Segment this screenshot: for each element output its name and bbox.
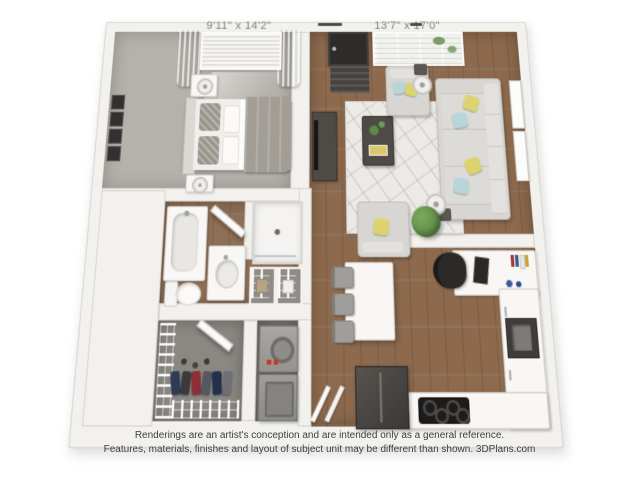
garment-icon [200, 371, 212, 395]
dining-chair [331, 267, 353, 289]
washer-button-icon [267, 360, 272, 365]
books-icon [369, 145, 388, 156]
throw-pillow-icon [453, 177, 470, 195]
gray-pillow [199, 103, 221, 131]
garment-icon [180, 371, 192, 395]
shower-glass [254, 255, 296, 257]
floor-lamp-icon [412, 75, 432, 95]
sink-basin [215, 260, 239, 289]
page: 9'11" x 14'2" 13'7" x 17'0" [0, 0, 639, 479]
closet-wire-shelving-south [171, 400, 239, 419]
art-frame-icon [106, 146, 121, 161]
nightstand-bottom [185, 175, 214, 193]
washer-button-icon [274, 360, 279, 365]
living-window [372, 32, 464, 66]
art-frame-icon [111, 95, 126, 110]
linen-closet-right [276, 267, 303, 306]
book-icon [525, 255, 529, 267]
table-lamp-icon [192, 177, 209, 194]
shower [252, 202, 303, 265]
sofa [435, 78, 511, 220]
dryer [258, 374, 298, 421]
disclaimer: Renderings are an artist's conception an… [0, 429, 639, 457]
floor-plan: 9'11" x 14'2" 13'7" x 17'0" [68, 22, 564, 448]
entry-doormat [330, 66, 369, 93]
armchair-bottom [357, 202, 411, 258]
disclaimer-line1: Renderings are an artist's conception an… [0, 429, 639, 443]
desk-accessory-icon [516, 281, 522, 287]
toilet-bowl [175, 282, 202, 305]
art-frame-icon [109, 112, 124, 127]
window-plant-icon [447, 46, 457, 53]
fridge-handle-icon [379, 373, 383, 423]
refrigerator [355, 366, 410, 429]
cabinet-handle-icon [509, 370, 512, 380]
coffee-table [362, 116, 395, 166]
gray-pillow [197, 136, 219, 164]
bathtub [163, 206, 208, 281]
washer [259, 325, 298, 372]
bed [182, 97, 291, 172]
dining-chair [332, 320, 355, 343]
garment-icon [222, 371, 233, 395]
throw-pillow-icon [373, 218, 390, 236]
bathtub-basin [170, 213, 199, 272]
floor-plant-icon [411, 206, 442, 237]
nightstand-top [190, 74, 218, 97]
toilet [164, 281, 201, 304]
hanging-clothes [170, 371, 240, 400]
kitchen-sink [505, 318, 540, 358]
bathroom-closet-wall [158, 303, 311, 320]
tv-icon [314, 120, 318, 170]
monitor-icon [473, 256, 489, 284]
cabinet-handle-icon [504, 307, 507, 317]
linen-stack-icon [283, 280, 294, 293]
desk-accessory-icon [506, 280, 513, 287]
door-lintel-dash [318, 23, 342, 26]
cooktop [418, 397, 470, 424]
entry-door [328, 32, 369, 66]
bedroom-window [200, 32, 282, 70]
table-lamp-icon [196, 78, 213, 95]
duvet [244, 97, 292, 172]
decor-ladder [311, 382, 353, 424]
basket-icon [256, 279, 269, 294]
door-knob-icon [332, 47, 336, 51]
office-chair [432, 253, 467, 289]
side-table [414, 64, 428, 75]
closet-laundry-wall [241, 320, 257, 421]
garment-icon [212, 371, 222, 395]
dryer-door-icon [265, 382, 294, 418]
dining-chair [332, 293, 355, 315]
garment-icon [191, 371, 201, 395]
art-frame-icon [108, 129, 123, 144]
sink-basin [511, 324, 532, 350]
window-plant-icon [433, 37, 446, 45]
shower-drain-icon [275, 229, 281, 235]
disclaimer-line2: Features, materials, finishes and layout… [0, 443, 639, 457]
white-pillow [222, 136, 240, 164]
burner-icon [456, 408, 471, 424]
bathroom-vanity [206, 245, 245, 300]
tabletop-plant-icon [369, 125, 379, 135]
linen-closet-left [249, 267, 276, 306]
armchair-back [362, 242, 404, 253]
white-pillow [223, 105, 241, 133]
window-lintel-dash [410, 23, 422, 26]
tabletop-plant-icon [379, 121, 385, 127]
